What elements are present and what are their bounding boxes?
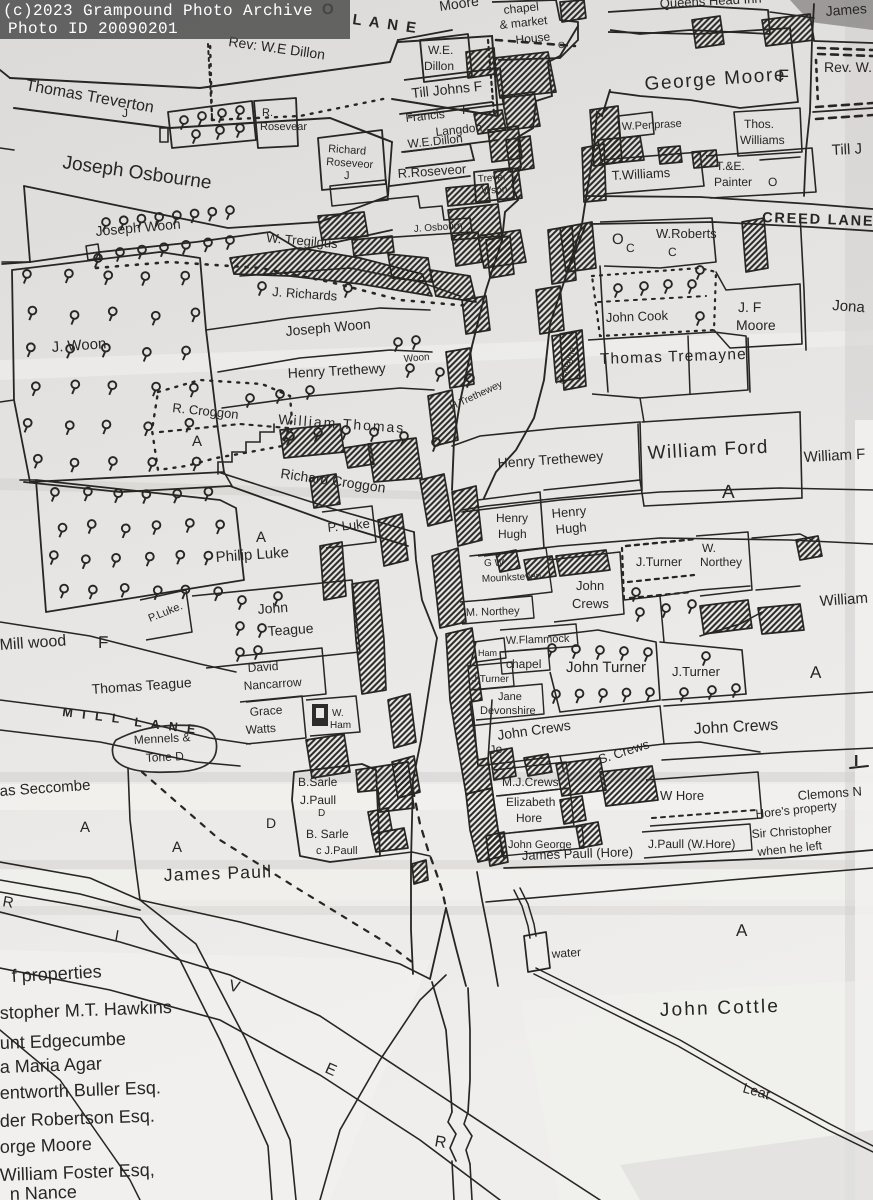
svg-text:T.Williams: T.Williams <box>611 165 671 183</box>
svg-text:Teague: Teague <box>267 620 314 639</box>
svg-text:William: William <box>819 590 868 610</box>
svg-text:Crews: Crews <box>572 596 609 611</box>
svg-text:Ham: Ham <box>478 648 497 658</box>
svg-text:David: David <box>247 659 279 675</box>
svg-text:W.E.: W.E. <box>428 43 453 57</box>
svg-text:C: C <box>668 245 677 259</box>
svg-text:Watts: Watts <box>245 721 276 737</box>
svg-text:Devonshire: Devonshire <box>480 705 536 717</box>
svg-text:J: J <box>344 170 350 182</box>
svg-text:John: John <box>257 599 288 617</box>
svg-text:J.Paull (W.Hore): J.Paull (W.Hore) <box>648 837 735 851</box>
svg-text:J. F: J. F <box>738 299 761 315</box>
svg-text:Hore: Hore <box>516 811 542 825</box>
svg-text:M. Northey: M. Northey <box>466 605 521 619</box>
svg-text:James: James <box>825 0 867 19</box>
svg-text:Rosevear: Rosevear <box>260 121 307 133</box>
svg-text:A: A <box>256 529 266 546</box>
svg-text:J.Turner: J.Turner <box>672 664 721 679</box>
svg-text:A: A <box>172 839 182 856</box>
svg-text:(c)2023 Grampound Photo Archiv: (c)2023 Grampound Photo Archive <box>3 2 313 20</box>
svg-text:orge Moore: orge Moore <box>0 1134 92 1157</box>
svg-text:Thos.: Thos. <box>744 117 774 131</box>
svg-text:O: O <box>768 175 777 189</box>
svg-text:J.Paull: J.Paull <box>300 793 336 807</box>
svg-text:T.&E.: T.&E. <box>716 159 745 173</box>
svg-text:n Nance: n Nance <box>9 1182 77 1200</box>
svg-text:F: F <box>778 66 789 86</box>
svg-text:Grace: Grace <box>249 703 283 719</box>
svg-text:C: C <box>626 241 635 255</box>
svg-text:W.: W. <box>332 708 344 719</box>
svg-text:Jane: Jane <box>498 691 522 703</box>
svg-text:W Hore: W Hore <box>660 788 704 803</box>
svg-text:J: J <box>122 106 128 120</box>
svg-text:Dillon: Dillon <box>424 59 454 73</box>
svg-text:Tone D: Tone D <box>145 749 184 765</box>
svg-text:James Paull: James Paull <box>163 861 272 885</box>
svg-text:Elizabeth: Elizabeth <box>506 795 555 809</box>
svg-text:Hugh: Hugh <box>555 519 587 537</box>
svg-text:Hugh: Hugh <box>498 527 527 541</box>
svg-text:water: water <box>550 945 581 961</box>
svg-text:c J.Paull: c J.Paull <box>316 845 358 857</box>
svg-text:John Cook: John Cook <box>606 308 669 325</box>
svg-text:A: A <box>810 663 822 682</box>
svg-text:W.: W. <box>702 541 716 555</box>
svg-text:John: John <box>576 578 604 593</box>
svg-text:Henry: Henry <box>551 503 587 521</box>
svg-text:D: D <box>266 815 276 831</box>
svg-text:Woon: Woon <box>403 352 430 365</box>
svg-text:F: F <box>98 633 108 652</box>
svg-text:William F: William F <box>803 446 865 466</box>
svg-text:Northey: Northey <box>700 555 742 569</box>
svg-text:Painter: Painter <box>714 175 752 189</box>
svg-text:Rev. W.: Rev. W. <box>824 59 872 75</box>
svg-text:A: A <box>736 921 748 940</box>
svg-text:Mennels &: Mennels & <box>133 730 190 747</box>
svg-text:Williams: Williams <box>740 133 785 147</box>
svg-text:F: F <box>462 102 470 117</box>
svg-text:Henry: Henry <box>496 511 528 525</box>
svg-text:A: A <box>722 482 735 503</box>
svg-text:chapel: chapel <box>506 657 541 671</box>
svg-text:Photo ID 20090201: Photo ID 20090201 <box>8 20 178 38</box>
svg-text:Till J: Till J <box>831 140 862 159</box>
svg-text:O: O <box>612 231 624 248</box>
svg-text:R.: R. <box>262 107 273 119</box>
svg-text:D: D <box>318 808 325 819</box>
svg-text:A: A <box>80 819 90 836</box>
svg-text:W.Roberts: W.Roberts <box>656 226 717 241</box>
svg-text:B. Sarle: B. Sarle <box>306 827 349 841</box>
svg-text:J.Turner: J.Turner <box>636 555 682 569</box>
svg-text:A: A <box>192 433 202 450</box>
svg-text:Moore: Moore <box>736 317 776 333</box>
svg-text:B.Sarle: B.Sarle <box>298 775 338 789</box>
svg-text:John Turner: John Turner <box>566 659 646 676</box>
svg-text:John Cottle: John Cottle <box>659 996 780 1021</box>
svg-text:Ham: Ham <box>330 720 351 731</box>
svg-text:Jona: Jona <box>832 297 866 316</box>
